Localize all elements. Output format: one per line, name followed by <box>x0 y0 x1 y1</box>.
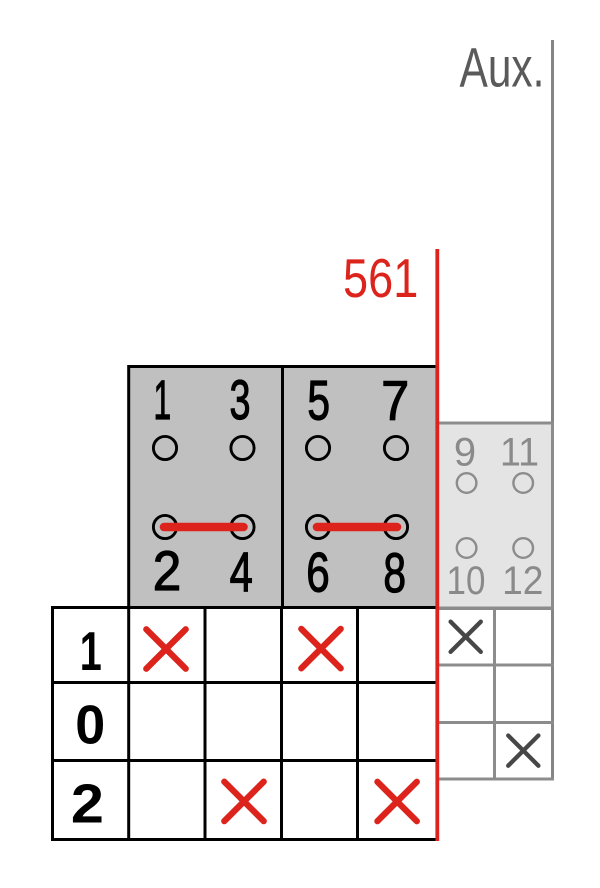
svg-text:8: 8 <box>383 543 406 605</box>
svg-text:9: 9 <box>454 431 476 475</box>
svg-text:11: 11 <box>500 430 539 474</box>
svg-text:10: 10 <box>447 558 486 603</box>
svg-text:3: 3 <box>230 370 251 432</box>
svg-text:1: 1 <box>80 622 102 683</box>
svg-text:Aux.: Aux. <box>460 37 545 99</box>
svg-text:7: 7 <box>381 370 409 432</box>
svg-text:4: 4 <box>230 541 253 603</box>
svg-text:2: 2 <box>153 540 182 603</box>
svg-text:12: 12 <box>502 559 543 604</box>
svg-text:2: 2 <box>71 773 104 834</box>
svg-text:0: 0 <box>75 694 105 756</box>
svg-text:6: 6 <box>306 541 329 604</box>
svg-text:561: 561 <box>343 247 418 309</box>
svg-text:5: 5 <box>307 370 330 432</box>
svg-text:1: 1 <box>153 369 171 432</box>
